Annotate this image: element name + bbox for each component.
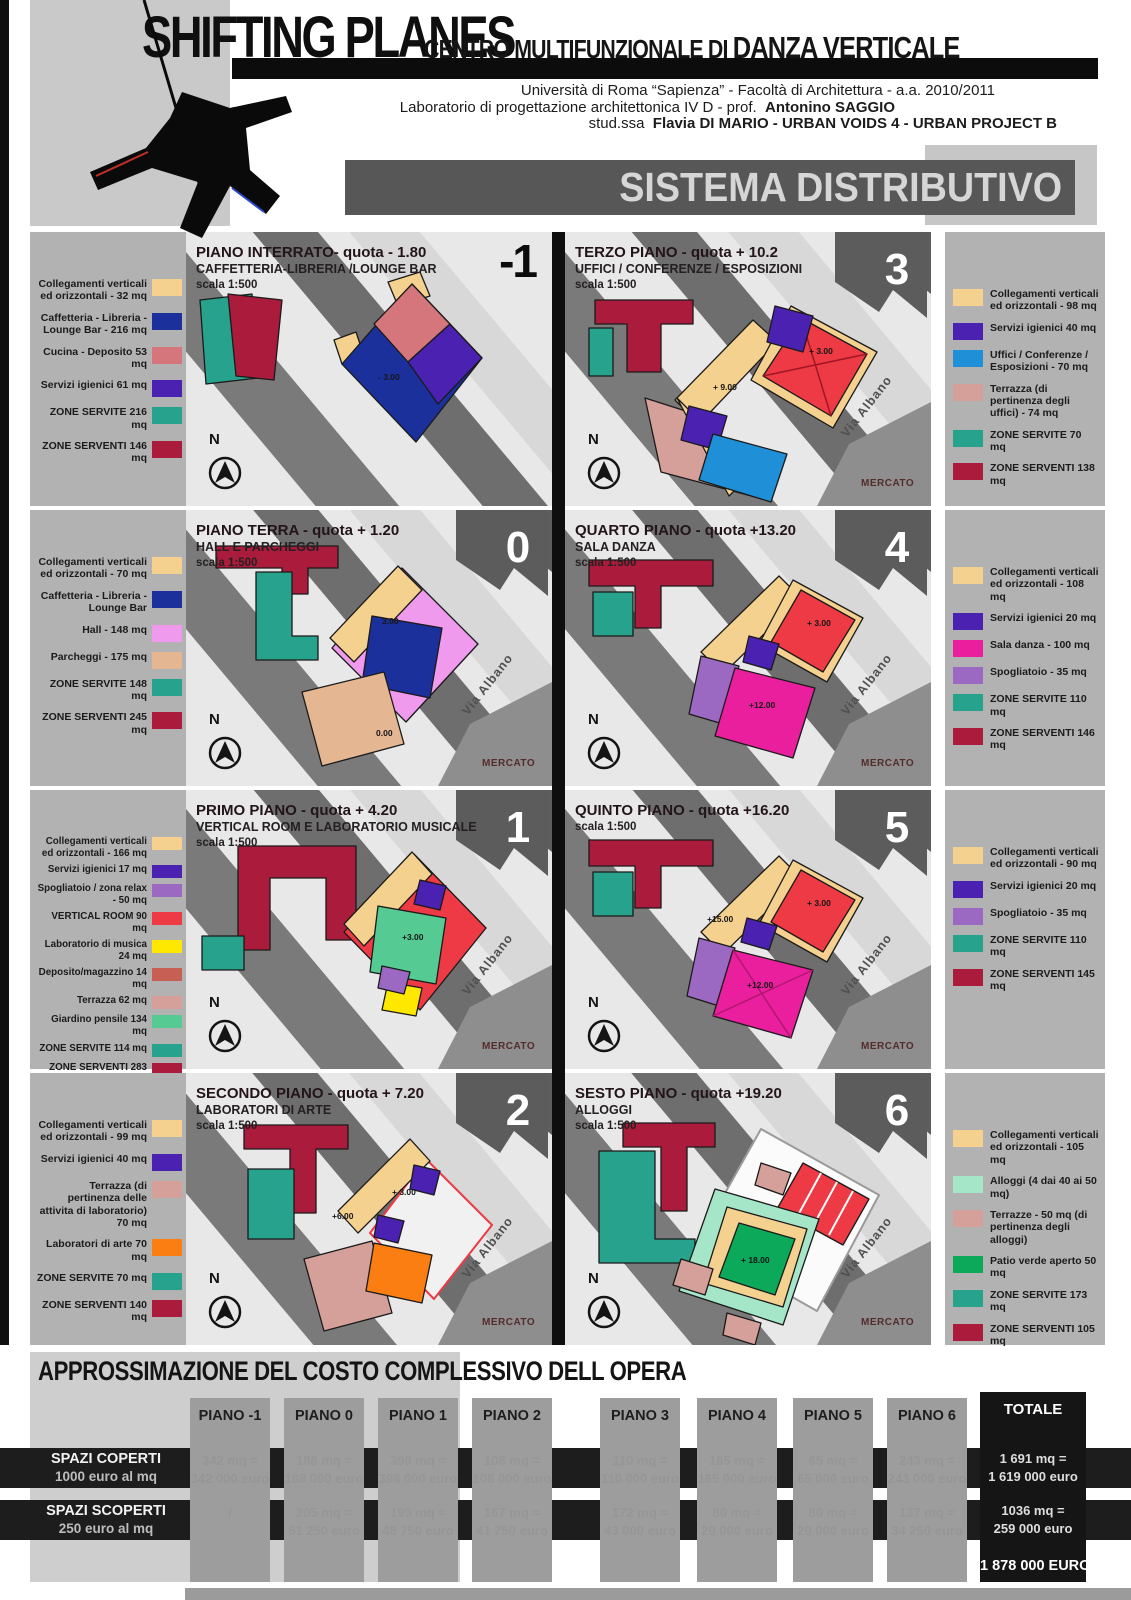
section-banner: SISTEMA DISTRIBUTIVO xyxy=(345,160,1075,215)
legend-label: ZONE SERVITE 110 mq xyxy=(983,934,1099,959)
panel-scale: scala 1:500 xyxy=(575,556,885,571)
floor-number: 4 xyxy=(885,523,910,572)
color-swatch-violet_deep xyxy=(152,380,182,397)
legend-p3: Collegamenti verticali ed orizzontali - … xyxy=(945,232,1105,506)
legend-label: Servizi igienici 40 mq xyxy=(36,1153,152,1165)
legend-item: Uffici / Conferenze / Esposizioni - 70 m… xyxy=(953,349,1099,374)
cost-value-coperti: 188 mq = 188 000 euro xyxy=(272,1452,376,1487)
panel-scale: scala 1:500 xyxy=(196,556,506,571)
cost-column-5: PIANO 4165 mq = 165 000 euro80 mq = 20 0… xyxy=(697,1398,777,1582)
legend-p5: Collegamenti verticali ed orizzontali - … xyxy=(945,790,1105,1069)
color-swatch-teal xyxy=(152,1273,182,1290)
poster-page: SHIFTING PLANES CENTRO MULTIFUNZIONALE D… xyxy=(0,0,1131,1600)
legend-item: Servizi igienici 17 mq xyxy=(36,864,182,878)
panel-scale: scala 1:500 xyxy=(196,278,506,293)
north-label: N xyxy=(209,431,220,448)
credit-student-text: stud.ssa xyxy=(589,115,645,132)
legend-item: ZONE SERVITE 114 mq xyxy=(36,1043,182,1057)
compass-block: N xyxy=(581,710,627,776)
cost-value-coperti: 108 mq = 108 000 euro xyxy=(460,1452,564,1487)
panel-m1: Collegamenti verticali ed orizzontali - … xyxy=(30,232,552,506)
elevation-label: +12.00 xyxy=(747,980,774,990)
legend-item: Caffetteria - Libreria - Lounge Bar xyxy=(36,590,182,615)
legend-item: Servizi igienici 40 mq xyxy=(36,1153,182,1171)
row-sublabel: 1000 euro al mq xyxy=(30,1469,182,1485)
panel-title: SECONDO PIANO - quota + 7.20 xyxy=(196,1085,506,1103)
legend-label: Terrazza 62 mq xyxy=(36,995,152,1007)
legend-label: Spogliatoio / zona relax - 50 mq xyxy=(36,883,152,906)
panel-p3: Collegamenti verticali ed orizzontali - … xyxy=(565,232,1105,506)
north-label: N xyxy=(588,431,599,448)
color-swatch-terrazza_pink xyxy=(152,996,182,1009)
north-compass: N xyxy=(581,1269,627,1335)
panel-subtitle: ALLOGGI xyxy=(575,1103,885,1119)
legend-p6: Collegamenti verticali ed orizzontali - … xyxy=(945,1073,1105,1345)
cost-column-header: PIANO 6 xyxy=(887,1408,967,1424)
cost-column-0: PIANO -1342 mq = 342 000 euro/ xyxy=(190,1398,270,1582)
color-swatch-cream xyxy=(152,557,182,574)
north-compass: N xyxy=(202,710,248,776)
legend-label: ZONE SERVITE 70 mq xyxy=(983,429,1099,454)
cost-column-header: PIANO 2 xyxy=(472,1408,552,1424)
footer-strip xyxy=(185,1588,1131,1600)
color-swatch-cream xyxy=(953,289,983,306)
mercato-label: MERCATO xyxy=(482,1041,535,1052)
color-swatch-teal xyxy=(152,1044,182,1057)
cost-row-label-scoperti: SPAZI SCOPERTI 250 euro al mq xyxy=(30,1500,182,1540)
north-compass: N xyxy=(202,993,248,1059)
legend-item: Collegamenti verticali ed orizzontali - … xyxy=(953,1129,1099,1166)
panel-title: PIANO TERRA - quota + 1.20 xyxy=(196,522,506,540)
color-swatch-teal xyxy=(953,694,983,711)
legend-item: ZONE SERVENTI 105 mq xyxy=(953,1323,1099,1348)
legend-item: Sala danza - 100 mq xyxy=(953,639,1099,657)
legend-p4: Collegamenti verticali ed orizzontali - … xyxy=(945,510,1105,786)
color-swatch-salmon xyxy=(152,347,182,364)
north-compass: N xyxy=(581,710,627,776)
panel-title: PRIMO PIANO - quota + 4.20 xyxy=(196,802,506,820)
color-swatch-spogliatoio_purple xyxy=(953,908,983,925)
legend-item: Servizi igienici 20 mq xyxy=(953,880,1099,898)
total-scoperti-value: 1036 mq = 259 000 euro xyxy=(980,1502,1086,1537)
floor-number: 3 xyxy=(885,245,909,294)
color-swatch-crimson xyxy=(953,969,983,986)
legend-item: Laboratori di arte 70 mq xyxy=(36,1238,182,1263)
cost-value-scoperti: 80 mq = 20 000 euro xyxy=(685,1504,789,1539)
legend-item: Deposito/magazzino 14 mq xyxy=(36,967,182,990)
legend-item: Alloggi (4 dai 40 ai 50 mq) xyxy=(953,1175,1099,1200)
panel-title: TERZO PIANO - quota + 10.2 xyxy=(575,244,885,262)
compass-block: N xyxy=(581,993,627,1059)
elevation-label: + 3.00 xyxy=(809,346,833,356)
color-swatch-patio_green xyxy=(953,1256,983,1273)
compass-block: N xyxy=(202,430,248,496)
panel-title-block: PIANO INTERRATO- quota - 1.80CAFFETTERIA… xyxy=(196,244,506,293)
legend-item: Terrazze - 50 mq (di pertinenza degli al… xyxy=(953,1209,1099,1246)
plan-area-p0: MERCATO3.000.00Via AlbanoPIANO TERRA - q… xyxy=(186,510,552,786)
cost-value-scoperti: 205 mq = 51 250 euro xyxy=(272,1504,376,1539)
legend-item: Cucina - Deposito 53 mq xyxy=(36,346,182,371)
north-compass: N xyxy=(202,430,248,496)
mercato-label: MERCATO xyxy=(861,478,914,489)
legend-item: ZONE SERVITE 70 mq xyxy=(36,1272,182,1290)
plan-area-p5: MERCATO+ 3.00+15.00+12.00Via AlbanoQUINT… xyxy=(565,790,931,1069)
legend-item: ZONE SERVENTI 145 mq xyxy=(953,968,1099,993)
legend-item: VERTICAL ROOM 90 mq xyxy=(36,911,182,934)
color-swatch-crimson xyxy=(152,441,182,458)
mercato-label: MERCATO xyxy=(861,1317,914,1328)
legend-item: Collegamenti verticali ed orizzontali - … xyxy=(36,1119,182,1144)
color-swatch-blue xyxy=(152,591,182,608)
color-swatch-terrazza_pink xyxy=(953,384,983,401)
legend-item: ZONE SERVITE 70 mq xyxy=(953,429,1099,454)
cost-value-scoperti: 137 mq = 34 250 euro xyxy=(875,1504,979,1539)
legend-label: Terrazza (di pertinenza degli uffici) - … xyxy=(983,383,1099,420)
legend-label: ZONE SERVENTI 138 mq xyxy=(983,462,1099,487)
legend-label: Collegamenti verticali ed orizzontali - … xyxy=(983,1129,1099,1166)
total-column-header: TOTALE xyxy=(980,1401,1086,1418)
color-swatch-hall_pink xyxy=(152,625,182,642)
panel-subtitle: HALL E PARCHEGGI xyxy=(196,540,506,556)
panel-p2: Collegamenti verticali ed orizzontali - … xyxy=(30,1073,552,1345)
color-swatch-crimson xyxy=(152,1300,182,1317)
floor-number: 6 xyxy=(885,1086,909,1135)
cost-value-coperti: 65 mq = 65 000 euro xyxy=(781,1452,885,1487)
legend-item: Caffetteria - Libreria - Lounge Bar - 21… xyxy=(36,312,182,337)
legend-label: Spogliatoio - 35 mq xyxy=(983,666,1099,678)
color-swatch-teal xyxy=(953,430,983,447)
panel-scale: scala 1:500 xyxy=(196,836,506,851)
legend-item: ZONE SERVENTI 146 mq xyxy=(36,440,182,465)
legend-item: ZONE SERVITE 216 mq xyxy=(36,406,182,431)
legend-label: Alloggi (4 dai 40 ai 50 mq) xyxy=(983,1175,1099,1200)
color-swatch-mint xyxy=(953,1176,983,1193)
compass-block: N xyxy=(581,1269,627,1335)
north-label: N xyxy=(588,711,599,728)
color-swatch-magenta xyxy=(953,640,983,657)
cost-value-scoperti: / xyxy=(178,1504,282,1522)
north-compass: N xyxy=(581,430,627,496)
color-swatch-cream xyxy=(152,279,182,296)
north-label: N xyxy=(209,711,220,728)
elevation-label: +6.00 xyxy=(332,1211,354,1221)
plan-area-m1: - 3.00PIANO INTERRATO- quota - 1.80CAFFE… xyxy=(186,232,552,506)
color-swatch-red xyxy=(152,912,182,925)
color-swatch-parcheggi_tan xyxy=(152,652,182,669)
legend-item: ZONE SERVENTI 146 mq xyxy=(953,727,1099,752)
panel-p1: Collegamenti verticali ed orizzontali - … xyxy=(30,790,552,1069)
legend-label: ZONE SERVENTI 245 mq xyxy=(36,711,152,736)
color-swatch-yellow xyxy=(152,940,182,953)
floor-number: 1 xyxy=(506,803,530,852)
color-swatch-orange xyxy=(152,1239,182,1256)
panel-title-block: SESTO PIANO - quota +19.20ALLOGGIscala 1… xyxy=(575,1085,885,1134)
elevation-label: - 3.00 xyxy=(378,372,400,382)
legend-label: ZONE SERVENTI 146 mq xyxy=(983,727,1099,752)
cost-value-coperti: 342 mq = 342 000 euro xyxy=(178,1452,282,1487)
color-swatch-crimson xyxy=(953,728,983,745)
panel-p6: Collegamenti verticali ed orizzontali - … xyxy=(565,1073,1105,1345)
cost-column-7: PIANO 6243 mq = 243 000 euro137 mq = 34 … xyxy=(887,1398,967,1582)
column-divider-bar xyxy=(552,232,565,1345)
mercato-label: MERCATO xyxy=(861,758,914,769)
cost-value-coperti: 165 mq = 165 000 euro xyxy=(685,1452,789,1487)
grand-total: 1 878 000 EURO xyxy=(980,1558,1086,1574)
legend-label: Giardino pensile 134 mq xyxy=(36,1014,152,1037)
legend-label: Collegamenti verticali ed orizzontali - … xyxy=(36,836,152,859)
cost-column-header: PIANO 0 xyxy=(284,1408,364,1424)
legend-label: ZONE SERVENTI 105 mq xyxy=(983,1323,1099,1348)
legend-item: ZONE SERVENTI 138 mq xyxy=(953,462,1099,487)
row-label: SPAZI COPERTI xyxy=(30,1451,182,1468)
panel-scale: scala 1:500 xyxy=(196,1119,506,1134)
north-label: N xyxy=(209,1270,220,1287)
legend-label: Terrazze - 50 mq (di pertinenza degli al… xyxy=(983,1209,1099,1246)
floor-number: 5 xyxy=(885,803,909,852)
legend-label: ZONE SERVITE 148 mq xyxy=(36,678,152,703)
color-swatch-crimson xyxy=(953,1324,983,1341)
cost-column-1: PIANO 0188 mq = 188 000 euro205 mq = 51 … xyxy=(284,1398,364,1582)
plan-area-p6: MERCATO+ 18.00Via AlbanoSESTO PIANO - qu… xyxy=(565,1073,931,1345)
panel-title-block: QUINTO PIANO - quota +16.20scala 1:500 xyxy=(575,802,885,835)
plan-area-p3: MERCATO+ 3.00+ 9.00Via AlbanoTERZO PIANO… xyxy=(565,232,931,506)
elevation-label: + 3.00 xyxy=(807,618,831,628)
panel-p5: Collegamenti verticali ed orizzontali - … xyxy=(565,790,1105,1069)
legend-item: ZONE SERVENTI 140 mq xyxy=(36,1299,182,1324)
legend-label: Collegamenti verticali ed orizzontali - … xyxy=(36,556,152,581)
legend-label: Terrazza (di pertinenza delle attivita d… xyxy=(36,1180,152,1230)
legend-label: Servizi igienici 20 mq xyxy=(983,880,1099,892)
legend-label: ZONE SERVENTI 146 mq xyxy=(36,440,152,465)
north-label: N xyxy=(209,994,220,1011)
legend-label: Collegamenti verticali ed orizzontali - … xyxy=(983,846,1099,871)
legend-item: ZONE SERVITE 110 mq xyxy=(953,693,1099,718)
floor-number: 0 xyxy=(506,523,530,572)
dancer-silhouette xyxy=(34,0,324,240)
cost-total-column: TOTALE 1 691 mq = 1 619 000 euro 1036 mq… xyxy=(980,1392,1086,1582)
color-swatch-spogliatoio_purple xyxy=(152,884,182,897)
color-swatch-cream xyxy=(152,837,182,850)
legend-item: Spogliatoio - 35 mq xyxy=(953,666,1099,684)
color-swatch-blue xyxy=(152,313,182,330)
panel-title: PIANO INTERRATO- quota - 1.80 xyxy=(196,244,506,262)
color-swatch-terrazza_pink xyxy=(953,1210,983,1227)
north-label: N xyxy=(588,1270,599,1287)
legend-label: Caffetteria - Libreria - Lounge Bar xyxy=(36,590,152,615)
color-swatch-crimson xyxy=(152,712,182,729)
panel-subtitle: VERTICAL ROOM E LABORATORIO MUSICALE xyxy=(196,820,506,836)
legend-item: ZONE SERVITE 148 mq xyxy=(36,678,182,703)
credit-lab: Laboratorio di progettazione architetton… xyxy=(400,99,895,116)
cost-column-header: PIANO 4 xyxy=(697,1408,777,1424)
legend-label: ZONE SERVITE 70 mq xyxy=(36,1272,152,1284)
legend-label: Servizi igienici 40 mq xyxy=(983,322,1099,334)
elevation-label: 3.00 xyxy=(382,616,399,626)
legend-p2: Collegamenti verticali ed orizzontali - … xyxy=(30,1073,186,1345)
panel-title-block: SECONDO PIANO - quota + 7.20LABORATORI D… xyxy=(196,1085,506,1134)
color-swatch-teal xyxy=(953,935,983,952)
row-label: SPAZI SCOPERTI xyxy=(30,1503,182,1520)
legend-label: ZONE SERVENTI 140 mq xyxy=(36,1299,152,1324)
legend-item: Terrazza 62 mq xyxy=(36,995,182,1009)
legend-label: Laboratorio di musica 24 mq xyxy=(36,939,152,962)
legend-item: ZONE SERVITE 173 mq xyxy=(953,1289,1099,1314)
elevation-label: 0.00 xyxy=(376,728,393,738)
legend-p0: Collegamenti verticali ed orizzontali - … xyxy=(30,510,186,786)
panel-scale: scala 1:500 xyxy=(575,1119,885,1134)
color-swatch-brick xyxy=(152,968,182,981)
legend-label: Collegamenti verticali ed orizzontali - … xyxy=(983,288,1099,313)
legend-label: Deposito/magazzino 14 mq xyxy=(36,967,152,990)
panel-scale: scala 1:500 xyxy=(575,820,885,835)
cost-column-header: PIANO 1 xyxy=(378,1408,458,1424)
panel-subtitle: UFFICI / CONFERENZE / ESPOSIZIONI xyxy=(575,262,885,278)
compass-block: N xyxy=(581,430,627,496)
legend-item: Terrazza (di pertinenza degli uffici) - … xyxy=(953,383,1099,420)
credit-university: Università di Roma “Sapienza” - Facoltà … xyxy=(521,82,995,99)
credit-student: stud.ssa Flavia DI MARIO - URBAN VOIDS 4… xyxy=(589,115,1057,132)
panel-scale: scala 1:500 xyxy=(575,278,885,293)
legend-label: Sala danza - 100 mq xyxy=(983,639,1099,651)
legend-item: Collegamenti verticali ed orizzontali - … xyxy=(953,566,1099,603)
legend-item: Collegamenti verticali ed orizzontali - … xyxy=(953,846,1099,871)
floor-number: 2 xyxy=(506,1086,530,1135)
color-swatch-crimson xyxy=(953,463,983,480)
elevation-label: +15.00 xyxy=(707,914,734,924)
cost-value-scoperti: 195 mq = 48 750 euro xyxy=(366,1504,470,1539)
color-swatch-teal xyxy=(953,1290,983,1307)
panel-subtitle: SALA DANZA xyxy=(575,540,885,556)
color-swatch-cream xyxy=(953,567,983,584)
legend-label: ZONE SERVENTI 145 mq xyxy=(983,968,1099,993)
legend-label: Servizi igienici 17 mq xyxy=(36,864,152,876)
north-compass: N xyxy=(581,993,627,1059)
cost-column-4: PIANO 3110 mq = 110 000 euro172 mq = 43 … xyxy=(600,1398,680,1582)
legend-label: Parcheggi - 175 mq xyxy=(36,651,152,663)
north-label: N xyxy=(588,994,599,1011)
panel-title: QUINTO PIANO - quota +16.20 xyxy=(575,802,885,820)
plan-area-p4: MERCATO+ 3.00+12.00Via AlbanoQUARTO PIAN… xyxy=(565,510,931,786)
cost-column-header: PIANO -1 xyxy=(190,1408,270,1424)
color-swatch-spogliatoio_purple xyxy=(953,667,983,684)
credit-student-strong: Flavia DI MARIO - URBAN VOIDS 4 - URBAN … xyxy=(653,115,1057,132)
legend-label: Spogliatoio - 35 mq xyxy=(983,907,1099,919)
panel-title-block: TERZO PIANO - quota + 10.2UFFICI / CONFE… xyxy=(575,244,885,293)
cost-column-header: PIANO 5 xyxy=(793,1408,873,1424)
color-swatch-garden_green xyxy=(152,1015,182,1028)
color-swatch-terrazza_pink xyxy=(152,1181,182,1198)
elevation-label: + 3.00 xyxy=(807,898,831,908)
panel-title-block: QUARTO PIANO - quota +13.20SALA DANZAsca… xyxy=(575,522,885,571)
legend-label: Servizi igienici 20 mq xyxy=(983,612,1099,624)
elevation-label: + 3.00 xyxy=(392,1187,416,1197)
legend-item: Servizi igienici 61 mq xyxy=(36,379,182,397)
color-swatch-teal xyxy=(152,407,182,424)
panel-subtitle: LABORATORI DI ARTE xyxy=(196,1103,506,1119)
total-coperti-value: 1 691 mq = 1 619 000 euro xyxy=(980,1450,1086,1485)
legend-item: Laboratorio di musica 24 mq xyxy=(36,939,182,962)
legend-item: Patio verde aperto 50 mq xyxy=(953,1255,1099,1280)
panel-title-block: PIANO TERRA - quota + 1.20HALL E PARCHEG… xyxy=(196,522,506,571)
elevation-label: +12.00 xyxy=(749,700,776,710)
cost-section-title: APPROSSIMAZIONE DEL COSTO COMPLESSIVO DE… xyxy=(38,1356,686,1387)
color-swatch-violet_deep xyxy=(152,865,182,878)
panel-title-block: PRIMO PIANO - quota + 4.20VERTICAL ROOM … xyxy=(196,802,506,851)
color-swatch-uffici_blue xyxy=(953,350,983,367)
section-banner-label: SISTEMA DISTRIBUTIVO xyxy=(403,160,1075,215)
legend-item: Giardino pensile 134 mq xyxy=(36,1014,182,1037)
credit-professor: Antonino SAGGIO xyxy=(765,99,895,116)
legend-label: Collegamenti verticali ed orizzontali - … xyxy=(36,1119,152,1144)
cost-value-coperti: 110 mq = 110 000 euro xyxy=(588,1452,692,1487)
compass-block: N xyxy=(202,710,248,776)
cost-value-coperti: 398 mq = 398 000 euro xyxy=(366,1452,470,1487)
legend-item: Collegamenti verticali ed orizzontali - … xyxy=(36,278,182,303)
elevation-label: +3.00 xyxy=(402,932,424,942)
legend-item: Servizi igienici 20 mq xyxy=(953,612,1099,630)
mercato-label: MERCATO xyxy=(482,1317,535,1328)
legend-item: Collegamenti verticali ed orizzontali - … xyxy=(36,836,182,859)
cost-column-2: PIANO 1398 mq = 398 000 euro195 mq = 48 … xyxy=(378,1398,458,1582)
legend-label: Caffetteria - Libreria - Lounge Bar - 21… xyxy=(36,312,152,337)
legend-item: Terrazza (di pertinenza delle attivita d… xyxy=(36,1180,182,1230)
panel-title: QUARTO PIANO - quota +13.20 xyxy=(575,522,885,540)
legend-m1: Collegamenti verticali ed orizzontali - … xyxy=(30,232,186,506)
legend-label: ZONE SERVITE 110 mq xyxy=(983,693,1099,718)
legend-label: Uffici / Conferenze / Esposizioni - 70 m… xyxy=(983,349,1099,374)
panel-subtitle: CAFFETTERIA-LIBRERIA /LOUNGE BAR xyxy=(196,262,506,278)
row-sublabel: 250 euro al mq xyxy=(30,1521,182,1537)
legend-item: ZONE SERVENTI 245 mq xyxy=(36,711,182,736)
legend-item: Collegamenti verticali ed orizzontali - … xyxy=(36,556,182,581)
legend-label: Cucina - Deposito 53 mq xyxy=(36,346,152,371)
legend-label: VERTICAL ROOM 90 mq xyxy=(36,911,152,934)
legend-item: Spogliatoio - 35 mq xyxy=(953,907,1099,925)
credit-lab-text: Laboratorio di progettazione architetton… xyxy=(400,99,757,116)
elevation-label: + 18.00 xyxy=(741,1255,770,1265)
legend-label: ZONE SERVITE 216 mq xyxy=(36,406,152,431)
left-edge-bar xyxy=(0,0,9,1345)
color-swatch-violet_deep xyxy=(953,881,983,898)
legend-label: Hall - 148 mq xyxy=(36,624,152,636)
cost-value-scoperti: 80 mq = 20 000 euro xyxy=(781,1504,885,1539)
cost-value-coperti: 243 mq = 243 000 euro xyxy=(875,1452,979,1487)
legend-label: Laboratori di arte 70 mq xyxy=(36,1238,152,1263)
legend-label: Patio verde aperto 50 mq xyxy=(983,1255,1099,1280)
panel-p0: Collegamenti verticali ed orizzontali - … xyxy=(30,510,552,786)
mercato-label: MERCATO xyxy=(861,1041,914,1052)
plan-area-p2: MERCATO+ 3.00+6.00Via AlbanoSECONDO PIAN… xyxy=(186,1073,552,1345)
color-swatch-teal xyxy=(152,679,182,696)
cost-row-label-coperti: SPAZI COPERTI 1000 euro al mq xyxy=(30,1448,182,1488)
legend-item: ZONE SERVITE 110 mq xyxy=(953,934,1099,959)
header-black-bar xyxy=(232,58,1098,79)
compass-block: N xyxy=(202,993,248,1059)
mercato-label: MERCATO xyxy=(482,758,535,769)
legend-label: ZONE SERVITE 173 mq xyxy=(983,1289,1099,1314)
color-swatch-violet_deep xyxy=(152,1154,182,1171)
legend-label: Collegamenti verticali ed orizzontali - … xyxy=(983,566,1099,603)
cost-value-scoperti: 167 mq = 41 750 euro xyxy=(460,1504,564,1539)
panel-title: SESTO PIANO - quota +19.20 xyxy=(575,1085,885,1103)
plan-area-p1: MERCATO+3.00Via AlbanoPRIMO PIANO - quot… xyxy=(186,790,552,1069)
legend-label: ZONE SERVITE 114 mq xyxy=(36,1043,152,1055)
legend-item: Servizi igienici 40 mq xyxy=(953,322,1099,340)
legend-label: Servizi igienici 61 mq xyxy=(36,379,152,391)
legend-item: Spogliatoio / zona relax - 50 mq xyxy=(36,883,182,906)
color-swatch-violet_deep xyxy=(953,323,983,340)
cost-column-header: PIANO 3 xyxy=(600,1408,680,1424)
